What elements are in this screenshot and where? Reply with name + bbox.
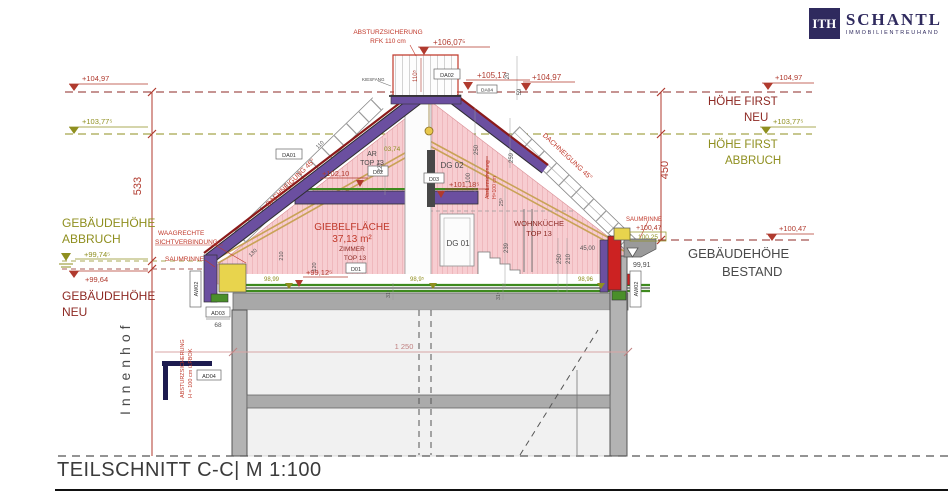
absturz-left-label-1: ABSTURZSICHERUNG (180, 339, 186, 398)
giebelflaeche-area: 37,13 m² (332, 234, 372, 245)
gebaeudehoehe-bestand-2: BESTAND (722, 264, 782, 279)
elev-first-neu-right: +104,97 (775, 73, 802, 82)
dim-210b: 210 (279, 251, 285, 260)
elev-bestand-right: +100,47 (779, 224, 806, 233)
dim-total-width: 1 250 (395, 342, 414, 351)
logo-monogram: ITH (809, 8, 840, 39)
mid-slab (247, 395, 610, 408)
innenhof-label: Innenhof (117, 321, 133, 416)
dim-210a: 210 (566, 253, 572, 264)
elev-ridge-top: +104,97 (532, 73, 562, 82)
absturz-left-label-2: H = 100 cm ü.FBOK (188, 348, 194, 398)
dim-533: 533 (132, 177, 144, 195)
tag-aw02-right: AW02 (634, 282, 640, 297)
section-drawing: DA01 DA02 DA04 D02 D03 D01 AD03 68 AD04 … (0, 0, 950, 498)
kiesfang-label: KIESFANG (362, 77, 385, 82)
elev-floor-a: 98,99 (264, 277, 280, 283)
room-dg02: DG 02 (440, 161, 464, 170)
dim-4500: 45,00 (580, 246, 596, 252)
parapet-left (162, 361, 212, 400)
elev-first-neu-left: +104,97 (82, 74, 109, 83)
dim-250b: 250 (557, 253, 563, 264)
elev-old-ridge: 03,74 (384, 146, 401, 153)
elev-floor-top13: +99,12⁵ (306, 268, 332, 277)
tag-aw02-left: AW02 (194, 282, 200, 297)
dim-25: 25⁵ (498, 198, 505, 206)
hoehe-first-neu-2: NEU (744, 112, 768, 124)
dim-120: 120 (312, 262, 318, 271)
elev-geb-neu: +99,64 (85, 275, 108, 284)
absturz-mid-label-1: Absturzsicherung (485, 160, 491, 199)
section-drawing-page: DA01 DA02 DA04 D02 D03 D01 AD03 68 AD04 … (0, 0, 950, 498)
tag-ad04: AD04 (202, 374, 216, 380)
dim-31a: 31⁵ (386, 290, 392, 298)
dim-239: 239 (504, 242, 510, 253)
room-wohnkueche-2: TOP 13 (526, 229, 552, 238)
dim-450: 450 (659, 161, 671, 179)
room-ar-1: AR (367, 151, 377, 158)
elev-floor-c: 98,96 (578, 277, 594, 283)
attic-floor-slab (295, 189, 478, 204)
gebaeudehoehe-bestand-1: GEBÄUDEHÖHE (688, 246, 789, 261)
drawing-title: TEILSCHNITT C-C| M 1:100 (57, 459, 322, 482)
logo-name: SCHANTL (846, 11, 942, 28)
elev-eave-right: +100,47 (636, 225, 662, 232)
dim-31b: 31⁵ (496, 292, 502, 300)
elev-first-abbruch-right: +103,77⁵ (773, 117, 803, 126)
hoist-pulley-icon (425, 127, 433, 135)
wall-left (232, 310, 247, 456)
logo-tagline: IMMOBILIENTREUHAND (846, 30, 942, 36)
tag-da01: DA01 (282, 153, 296, 159)
hoehe-first-abbruch-1: HÖHE FIRST (708, 139, 778, 151)
tag-da02: DA02 (440, 73, 454, 79)
room-wohnkueche-1: WOHNKÜCHE (514, 219, 564, 228)
dim-railing-height: 110⁵ (412, 69, 419, 82)
dim-259: 259 (509, 152, 515, 163)
gebaeudehoehe-neu-2: NEU (62, 305, 87, 319)
elev-slab-dg02: +101,18⁵ (449, 180, 479, 189)
absturz-top-label-1: ABSTURZSICHERUNG (353, 29, 422, 36)
elev-first-abbruch-left: +103,77⁵ (82, 117, 112, 126)
waagrechte-label-1: WAAGRECHTE (158, 230, 205, 237)
elev-eave-right-box: 100,25 (638, 234, 658, 241)
waagrechte-label-2: SICHTVERBINDUNG (155, 239, 218, 246)
room-zimmer-1: ZIMMER (339, 246, 365, 253)
elev-knee-left: +102,10 (322, 169, 349, 178)
room-zimmer-2: TOP 13 (344, 255, 367, 262)
giebelflaeche-label: GIEBELFLÄCHE (314, 221, 390, 233)
tag-ad03-value: 68 (214, 322, 222, 329)
hoehe-first-neu-1: HÖHE FIRST (708, 96, 778, 108)
tag-d01: D01 (351, 267, 361, 273)
saumrinne-right-label: SAUMRINNE (626, 217, 662, 223)
gebaeudehoehe-abbruch-1: GEBÄUDEHÖHE (62, 216, 155, 230)
dim-250a: 250 (474, 144, 480, 155)
elev-upper-flat: +105,17 (477, 71, 507, 80)
tag-d03: D03 (429, 177, 439, 183)
absturz-top-label-2: RFK 110 cm (370, 38, 406, 45)
dim-59: 59 (517, 88, 523, 95)
dim-20: 20 (505, 72, 511, 79)
elev-floor-b: 98,9⁵ (410, 276, 425, 283)
room-ar-2: TOP 13 (360, 160, 384, 167)
gebaeudehoehe-neu-1: GEBÄUDEHÖHE (62, 289, 155, 303)
absturz-mid-label-2: H=100 cm (492, 176, 498, 199)
saumrinne-left-label: SAUMRINNE (165, 256, 205, 263)
hoehe-first-abbruch-2: ABBRUCH (725, 155, 781, 167)
gebaeudehoehe-abbruch-2: ABBRUCH (62, 232, 121, 246)
tag-ad03: AD03 (211, 311, 225, 317)
company-logo: ITH SCHANTL IMMOBILIENTREUHAND (809, 8, 942, 39)
tag-da04: DA04 (481, 87, 493, 93)
room-dg01: DG 01 (446, 239, 470, 248)
elev-railing-top: +106,07⁵ (433, 38, 465, 47)
elev-eave-right-low: 99,91 (633, 262, 651, 269)
elev-geb-abbruch: +99,74⁵ (84, 250, 110, 259)
